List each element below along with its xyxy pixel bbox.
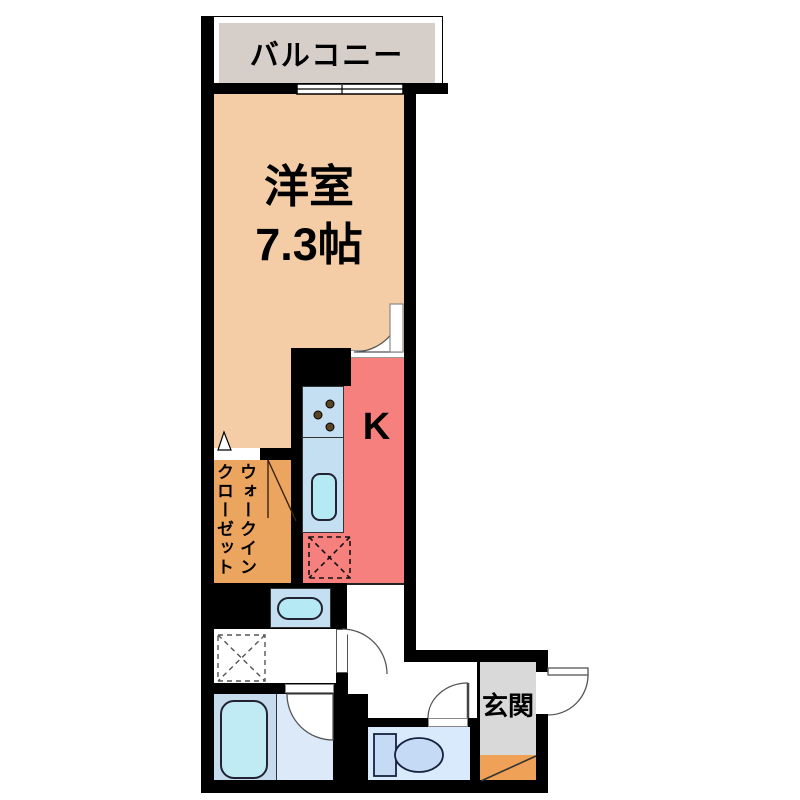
balcony: バルコニー <box>219 23 435 83</box>
living-room-size: 7.3帖 <box>214 216 404 274</box>
wall-entry-top <box>536 662 548 672</box>
washroom <box>214 629 336 683</box>
living-room-lower <box>214 350 291 448</box>
wall-bottom <box>201 780 548 793</box>
toilet-door-icon <box>428 683 468 718</box>
wall-entrance-left <box>470 718 480 782</box>
washroom-door-arc-icon <box>342 629 387 674</box>
bathroom-floor-area <box>276 694 333 782</box>
entrance-label: 玄関 <box>480 686 536 723</box>
bathtub <box>220 700 268 779</box>
closet-door-opening <box>217 448 262 460</box>
toilet-room <box>368 727 470 782</box>
front-door-opening <box>536 672 548 714</box>
front-door-icon <box>548 668 588 715</box>
living-room-name: 洋室 <box>214 158 404 216</box>
wall-kitchen-top <box>291 348 351 386</box>
wall-left <box>201 16 214 793</box>
kitchen-counter-divider <box>302 437 344 438</box>
washroom-door-leaf <box>336 629 348 673</box>
entrance-step <box>480 755 536 782</box>
closet-label-line2: クローゼット <box>215 463 232 577</box>
wall-top <box>201 83 448 94</box>
wall-toilet-top-left <box>368 718 428 727</box>
wall-entry-bottom <box>536 714 548 780</box>
toilet-door-threshold <box>428 718 468 727</box>
wall-closet-top <box>260 448 303 460</box>
balcony-label: バルコニー <box>250 32 404 74</box>
wall-right-main <box>404 94 416 662</box>
wash-basin-bowl <box>277 597 323 620</box>
kitchen-door-threshold <box>349 350 404 358</box>
wall-bath-toilet <box>333 694 368 785</box>
wall-step-horizontal <box>404 650 548 662</box>
closet-label-line1: ウォークイン <box>238 463 255 577</box>
floor-plan: バルコニー <box>0 0 800 800</box>
kitchen-sink <box>311 473 337 521</box>
living-room-label: 洋室 7.3帖 <box>214 158 404 274</box>
kitchen-label: K <box>349 406 404 449</box>
bathroom-door-threshold <box>285 684 334 693</box>
